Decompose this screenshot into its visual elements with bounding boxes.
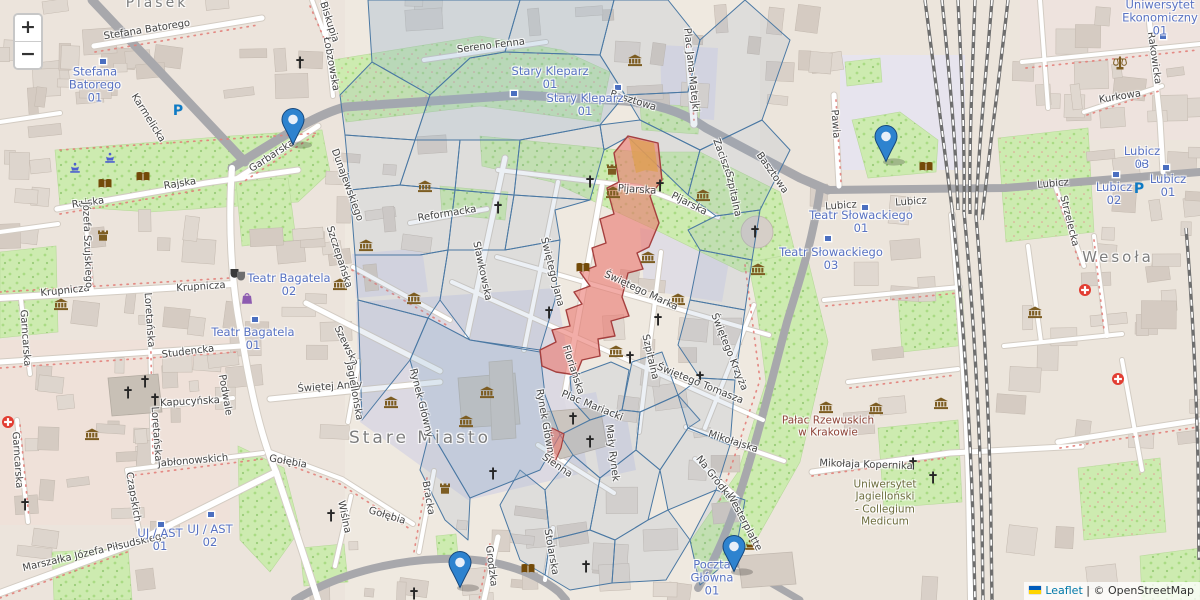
osm-attribution: © OpenStreetMap [1093,584,1194,597]
zoom-control: + − [13,13,43,70]
map-canvas[interactable]: PP Stare MiastoWesołaPiasekStefana Bator… [0,0,1200,600]
map-marker[interactable] [873,124,913,170]
map-marker[interactable] [721,534,761,580]
overlay-cell[interactable] [545,530,615,590]
overlay-cell[interactable] [505,0,614,55]
overlay-cell[interactable] [455,140,520,195]
overlay-cell[interactable] [690,250,752,310]
zoom-in-button[interactable]: + [15,15,41,42]
ukraine-flag-icon [1029,586,1041,594]
map-marker[interactable] [447,550,487,596]
map-base [0,0,1200,600]
leaflet-link[interactable]: Leaflet [1045,584,1082,597]
overlay-cell[interactable] [448,190,514,250]
map-marker[interactable] [280,107,320,153]
attribution-bar: Leaflet | © OpenStreetMap [1024,582,1200,600]
overlay-cell[interactable] [350,185,455,255]
attribution-separator: | [1086,584,1090,597]
zoom-out-button[interactable]: − [15,42,41,68]
